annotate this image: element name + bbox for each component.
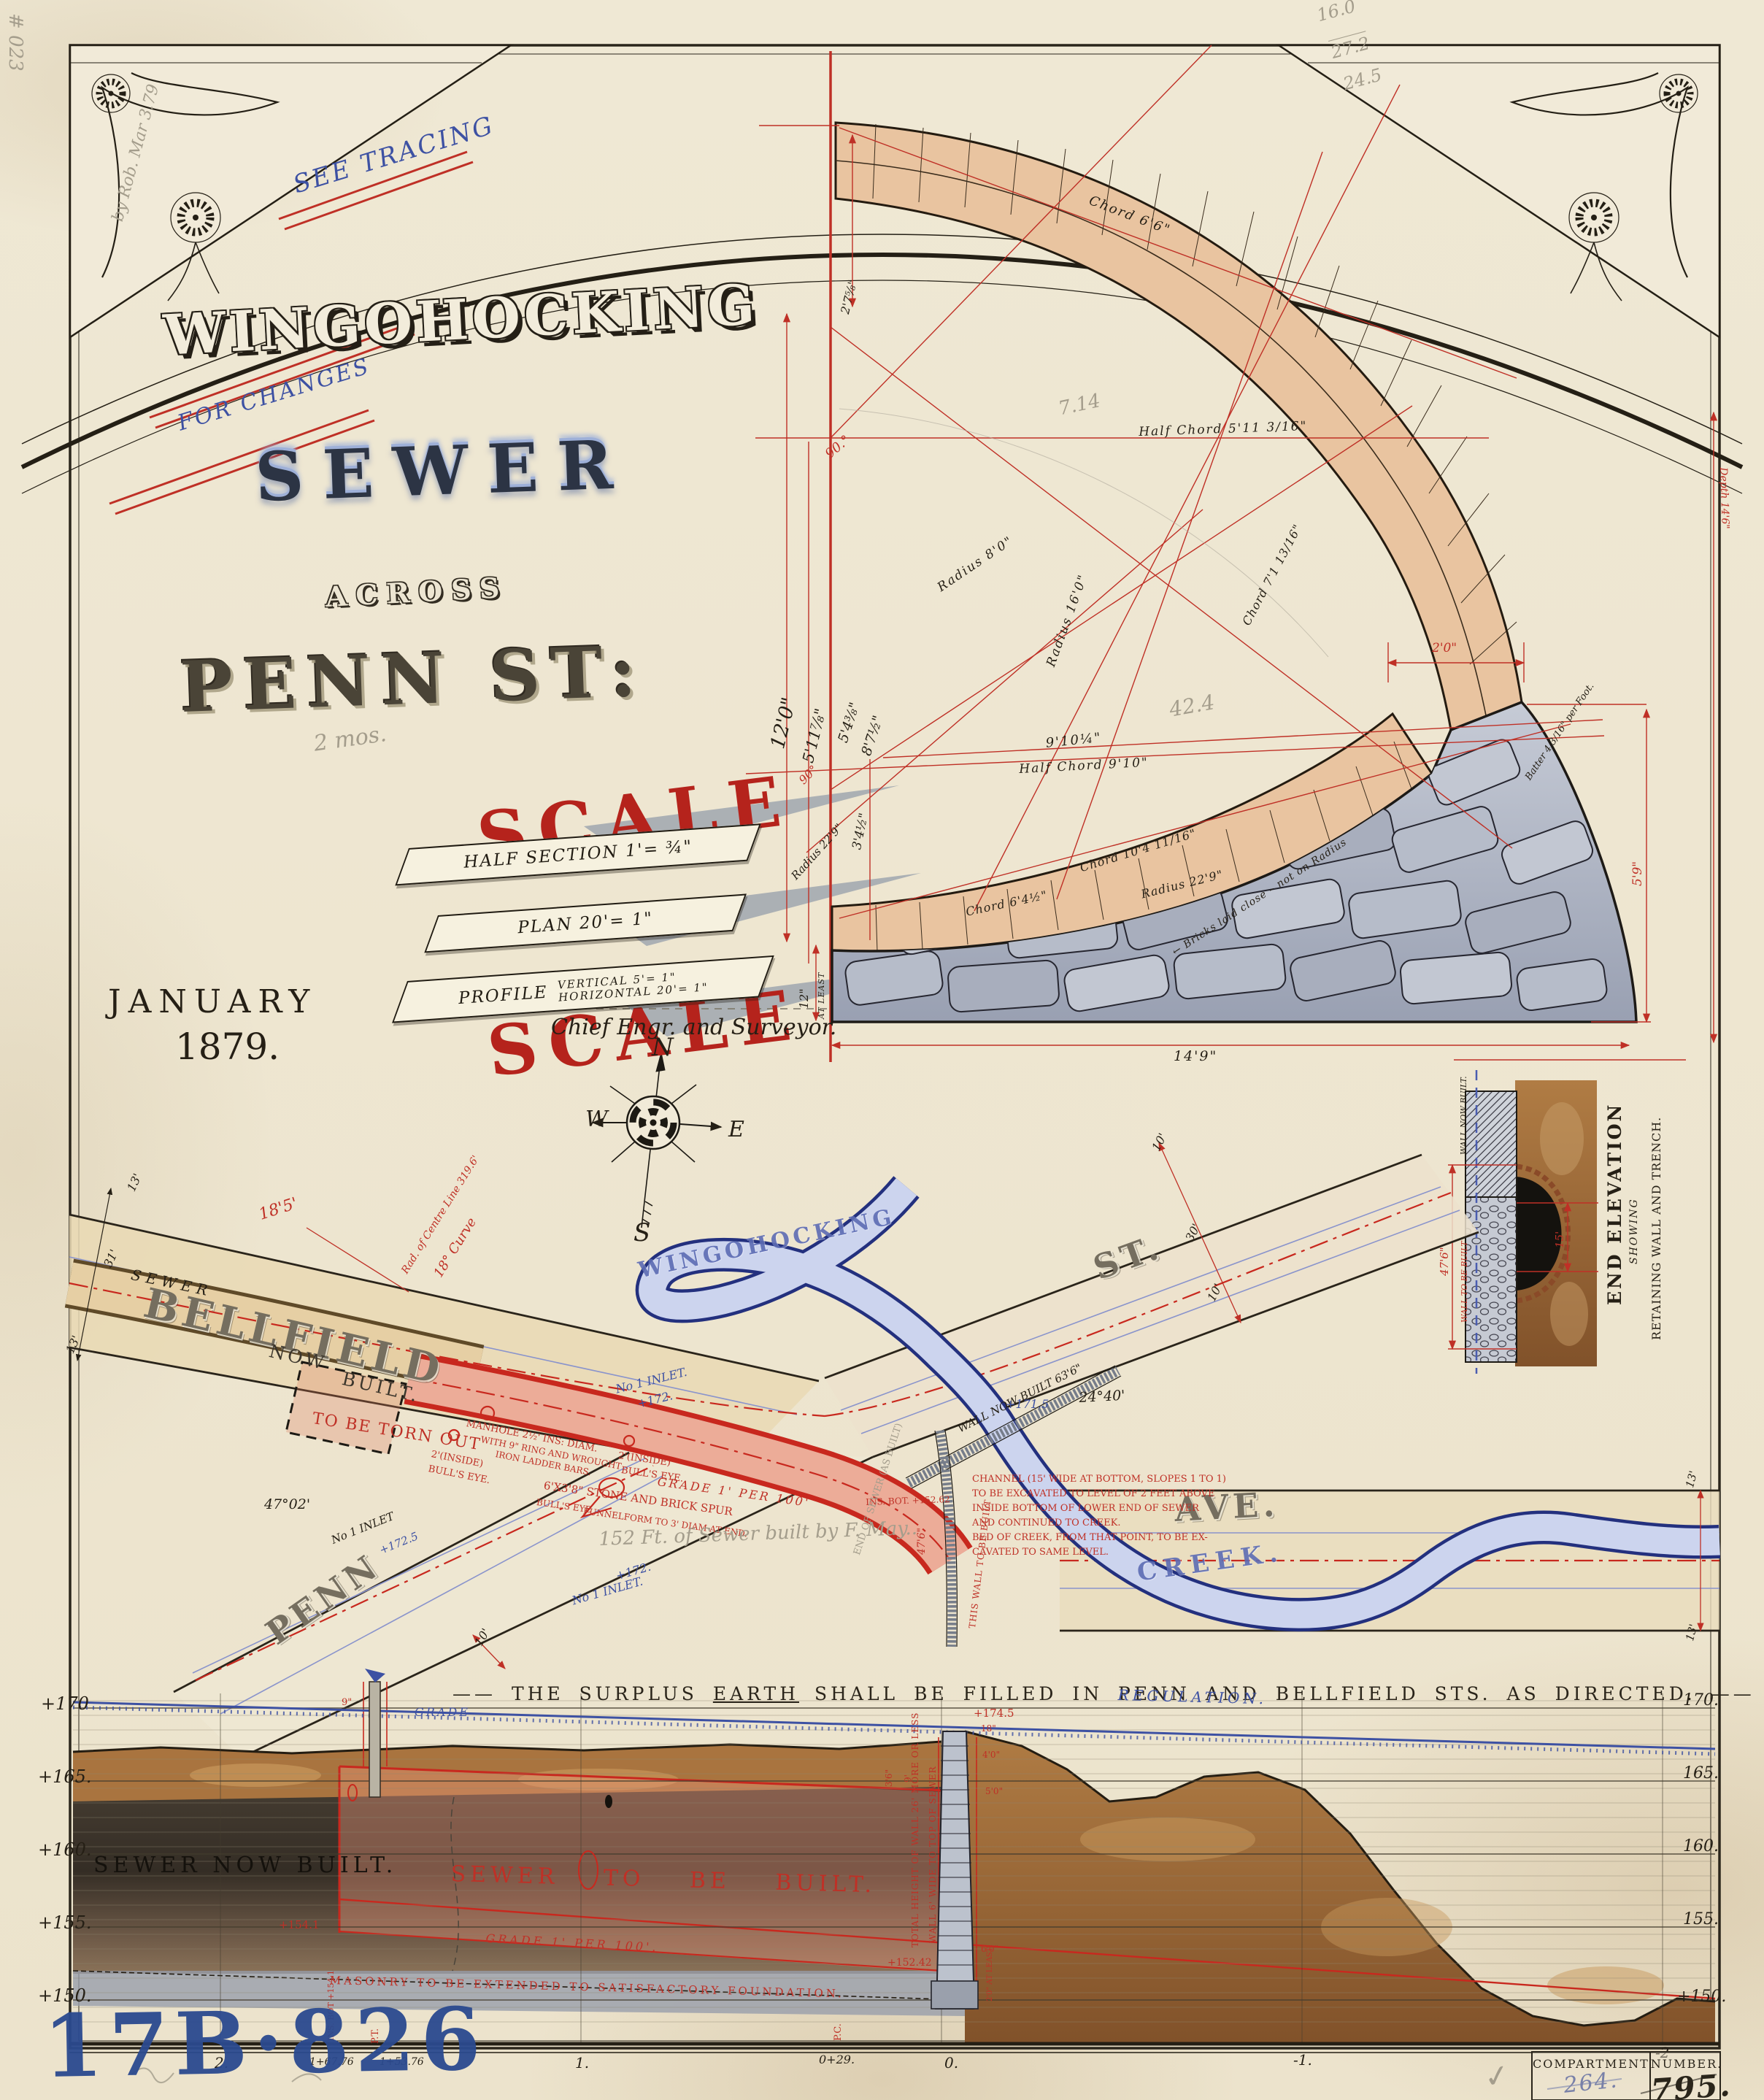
title-date-month: JANUARY — [108, 985, 317, 1019]
filing-number-value: 795. — [1649, 2068, 1724, 2100]
compass-west-label: W — [585, 1108, 608, 1131]
section-dim-12in: 12" — [798, 988, 811, 1009]
profile-dim-9in: 9" — [342, 1698, 352, 1708]
profile-2-0-at-least: 2'0" AT LEAST — [987, 1947, 995, 2001]
profile-elev-left-160: +160. — [38, 1841, 92, 1859]
profile-station-0: 0. — [944, 2055, 958, 2071]
plan-level-171-5: +171.5 — [1006, 1399, 1049, 1411]
section-width-base: 14'9" — [1174, 1050, 1217, 1064]
plan-channel-note-6: CAVATED TO SAME LEVEL. — [972, 1547, 1109, 1558]
profile-elev-right-150: +150. — [1677, 1988, 1726, 2005]
plan-channel-note-3: INSIDE BOTTOM OF LOWER END OF SEWER — [972, 1504, 1199, 1514]
profile-elev-right-160: 160. — [1683, 1838, 1719, 1855]
filing-checkmark: ✓ — [1482, 2058, 1512, 2095]
profile-dim-18in: 18" — [981, 1724, 996, 1734]
profile-pc: P.C. — [833, 2023, 844, 2041]
end-elevation-dim-47-6: 47'6" — [1439, 1247, 1451, 1276]
profile-elev-right-165: 165. — [1683, 1765, 1719, 1782]
scale-half-section-label: HALF SECTION 1'= ¾" — [463, 837, 693, 872]
profile-station-0-29: 0+29. — [819, 2054, 855, 2066]
filing-number-cell: NUMBER. 795. — [1651, 2053, 1722, 2099]
profile-elev-left-155: +155. — [38, 1914, 92, 1932]
end-elevation-wall-now: WALL NOW BUILT. — [1460, 1076, 1468, 1155]
plan-dim-47-6: 47'6" — [917, 1528, 928, 1555]
plan-angle-24-40: 24°40' — [1079, 1389, 1125, 1406]
title-sewer: SEWER — [254, 429, 633, 513]
profile-level-154-1: +154.1 — [279, 1920, 320, 1931]
signature-line: Chief Engr. and Surveyor. — [551, 1016, 836, 1039]
section-dim-5-9: 5'9" — [1632, 861, 1645, 886]
profile-station-1: 1. — [575, 2055, 589, 2071]
title-date-year: 1879. — [175, 1028, 280, 1066]
plan-channel-note-2: TO BE EXCAVATED TO LEVEL OF 2 FEET ABOVE — [972, 1489, 1214, 1499]
section-dim-12in-at-least: AT LEAST — [817, 972, 826, 1019]
plan-channel-note-5: BED OF CREEK, FROM THAT POINT, TO BE EX- — [972, 1533, 1208, 1543]
title-penn-st: PENN ST: — [179, 635, 647, 725]
end-elevation-dim-15: 15' — [1555, 1231, 1566, 1248]
profile-elev-left-165: +165. — [38, 1768, 92, 1786]
scale-profile-word: PROFILE — [458, 982, 548, 1008]
profile-elev-right-155: 155. — [1683, 1911, 1719, 1928]
profile-wall6: WALL 6' WIDE TO TOP OF SEWER — [928, 1766, 938, 1943]
filing-compartment-cell: COMPARTMENT 264. — [1533, 2053, 1651, 2099]
profile-elev-right-170: 170. — [1683, 1692, 1719, 1709]
drawing-sheet: # 023 by Rob. Mar 3.79 16.0 27.2 24.5 7.… — [0, 0, 1764, 2100]
profile-grade-label: GRADE — [415, 1707, 470, 1719]
plate-id-stamp: 17B·826 — [42, 1993, 487, 2091]
caption-post: SHALL BE FILLED IN PENN AND BELLFIELD ST… — [799, 1683, 1755, 1704]
profile-dim-3-6: 3'6" — [885, 1769, 894, 1787]
section-depth-note: Depth 14'6" — [1717, 467, 1730, 529]
compass-south-label: S — [633, 1220, 650, 1247]
compass-rose — [593, 1053, 721, 1228]
plan-channel-note-1: CHANNEL (15' WIDE AT BOTTOM, SLOPES 1 TO… — [972, 1474, 1226, 1485]
compass-east-label: E — [728, 1118, 744, 1142]
end-elevation-title: END ELEVATION — [1606, 1103, 1625, 1305]
profile-level-174-5: +174.5 — [974, 1708, 1014, 1720]
profile-total-height: TOTAL HEIGHT OF WALL 26' MORE OR LESS — [911, 1712, 920, 1947]
profile-dim-5-0: 5'0" — [985, 1787, 1003, 1796]
section-dim-2-0: 2'0" — [1432, 642, 1457, 655]
profile-dim-4-0: 4'0" — [982, 1750, 1000, 1760]
end-elevation-subtitle: RETAINING WALL AND TRENCH. — [1651, 1117, 1663, 1340]
plan-channel-note-4: AND CONTINUED TO CREEK. — [972, 1518, 1121, 1528]
surplus-earth-caption: —— THE SURPLUS EARTH SHALL BE FILLED IN … — [452, 1685, 1755, 1704]
profile-elev-left-170: +170 — [41, 1695, 89, 1713]
caption-pre: —— THE SURPLUS — [452, 1683, 713, 1704]
profile-level-152-42: +152.42 — [887, 1958, 932, 1969]
profile-station-minus1: -1. — [1293, 2053, 1312, 2068]
profile-now-built: SEWER NOW BUILT. — [93, 1854, 397, 1877]
profile-regulation-label: REGULATION. — [1117, 1688, 1267, 1707]
end-elevation-wall-tbb: WALL TO BE BUILT — [1460, 1241, 1469, 1323]
end-elevation-showing: SHOWING — [1629, 1198, 1640, 1264]
scale-plan-label: PLAN 20'= 1" — [517, 909, 654, 937]
caption-earth: EARTH — [713, 1683, 799, 1704]
compass-north-label: N — [652, 1035, 674, 1061]
plan-angle-47-02: 47°02' — [264, 1498, 310, 1512]
pencil-corner-number: # 023 — [5, 13, 25, 72]
filing-box: COMPARTMENT 264. NUMBER. 795. — [1531, 2051, 1721, 2100]
